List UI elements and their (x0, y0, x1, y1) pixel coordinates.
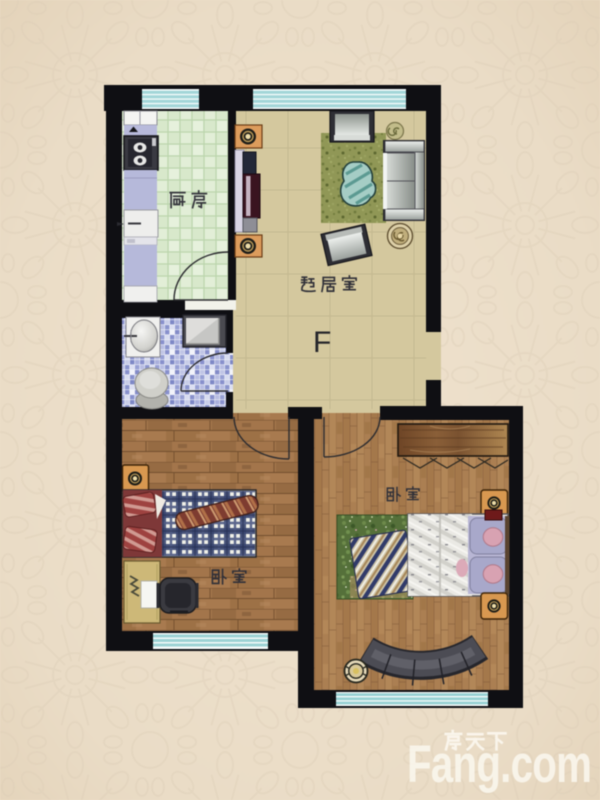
svg-text:F: F (313, 326, 331, 359)
svg-text:Fang.com: Fang.com (407, 734, 591, 794)
